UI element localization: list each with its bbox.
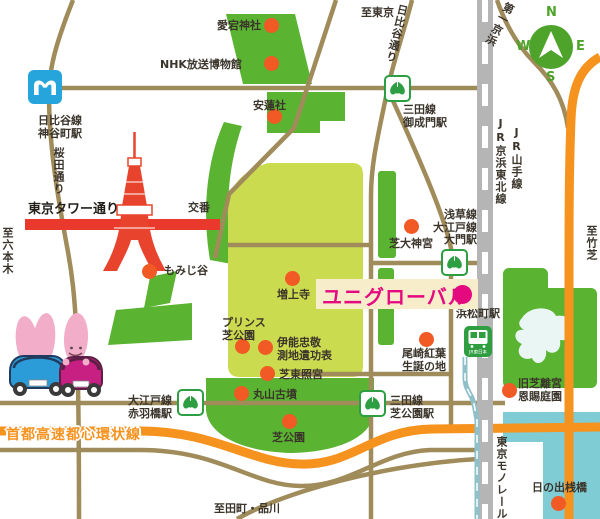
- label-anrensha: 安蓮社: [253, 99, 286, 112]
- daimon-station-icon: [441, 249, 468, 276]
- access-map: N W E S JR東日本 ユニグローバル: [0, 0, 600, 519]
- poi-dot-ozaki: [419, 332, 434, 347]
- onarimon-station-icon: [384, 75, 411, 102]
- label-akabanebashi-station: 大江戸線赤羽橋駅: [126, 394, 172, 420]
- compass-east: E: [576, 39, 585, 54]
- jr-hamamatsucho-station-icon: JR東日本: [464, 326, 492, 357]
- label-shibakoen-station: 三田線芝公園駅: [390, 394, 434, 420]
- monorail-line: [465, 357, 477, 519]
- label-atago-shrine: 愛宕神社: [217, 19, 261, 32]
- label-tokyo-monorail: 東京モノレール: [495, 436, 508, 519]
- label-ino-tadataka: 伊能忠敬測地遺功表: [277, 336, 332, 362]
- poi-dot-zojoji: [285, 271, 300, 286]
- poi-dot-ino: [258, 340, 273, 355]
- akabanebashi-station-icon: [177, 389, 204, 416]
- label-hinode-pier: 日の出桟橋: [532, 481, 587, 494]
- label-jr-yamanote: JR山手線: [510, 126, 523, 190]
- poi-dot-nhk: [264, 56, 279, 71]
- poi-dot-shibapark: [282, 414, 297, 429]
- poi-dot-kyushiba: [502, 383, 517, 398]
- label-onarimon-station: 三田線御成門駅: [403, 103, 447, 129]
- label-tokyo-tower-street: 東京タワー通り: [28, 203, 119, 216]
- label-kamiyacho-station: 日比谷線神谷町駅: [38, 114, 82, 140]
- label-maruyama-kofun: 丸山古墳: [253, 388, 297, 401]
- poi-dot-atago: [264, 18, 279, 33]
- label-jr-keihin-tohoku: JR京浜東北線: [494, 117, 507, 205]
- label-momijidani: もみじ谷: [164, 264, 208, 277]
- poi-dot-toshogu: [260, 366, 275, 381]
- label-to-tamachi-shinagawa: 至田町・品川: [214, 502, 280, 515]
- destination-name: ユニグローバル: [322, 281, 469, 310]
- label-to-roppongi: 至六本木: [1, 227, 14, 275]
- label-sakurada-dori: 桜田通り: [52, 147, 65, 195]
- compass-north: N: [546, 5, 557, 20]
- label-shiba-toshogu: 芝東照宮: [279, 368, 323, 381]
- label-kyu-shiba-rikyu: 旧芝離宮恩賜庭園: [518, 377, 562, 403]
- label-shiba-daijingu: 芝大神宮: [389, 237, 433, 250]
- poi-dot-momijidani: [142, 264, 157, 279]
- label-shuto-expressway: 首都高速都心環状線: [6, 424, 141, 444]
- label-zojoji: 増上寺: [277, 288, 310, 301]
- label-nhk-museum: NHK放送博物館: [160, 58, 242, 71]
- destination-dot: [453, 285, 472, 304]
- compass-south: S: [546, 70, 555, 85]
- tokyo-metro-station-icon: [28, 70, 62, 104]
- label-ozaki-koyo: 尾崎紅葉生誕の地: [402, 347, 446, 373]
- poi-dot-maruyama: [234, 386, 249, 401]
- label-prince-shiba-park: プリンス芝公園: [222, 316, 266, 342]
- label-to-tokyo: 至東京: [361, 6, 394, 19]
- compass-west: W: [516, 39, 530, 54]
- poi-dot-daijingu: [404, 219, 419, 234]
- jr-operator-caption: JR東日本: [468, 349, 487, 356]
- label-to-takeshiba: 至竹芝: [585, 225, 598, 261]
- poi-dot-hinode: [551, 496, 566, 511]
- shibakoen-station-icon: [359, 390, 386, 417]
- label-daimon-station: 浅草線大江戸線大門駅: [431, 209, 477, 247]
- label-shiba-park: 芝公園: [272, 431, 305, 444]
- mascot-characters: [10, 312, 102, 397]
- compass-rose: [529, 25, 573, 69]
- label-koban: 交番: [188, 201, 210, 214]
